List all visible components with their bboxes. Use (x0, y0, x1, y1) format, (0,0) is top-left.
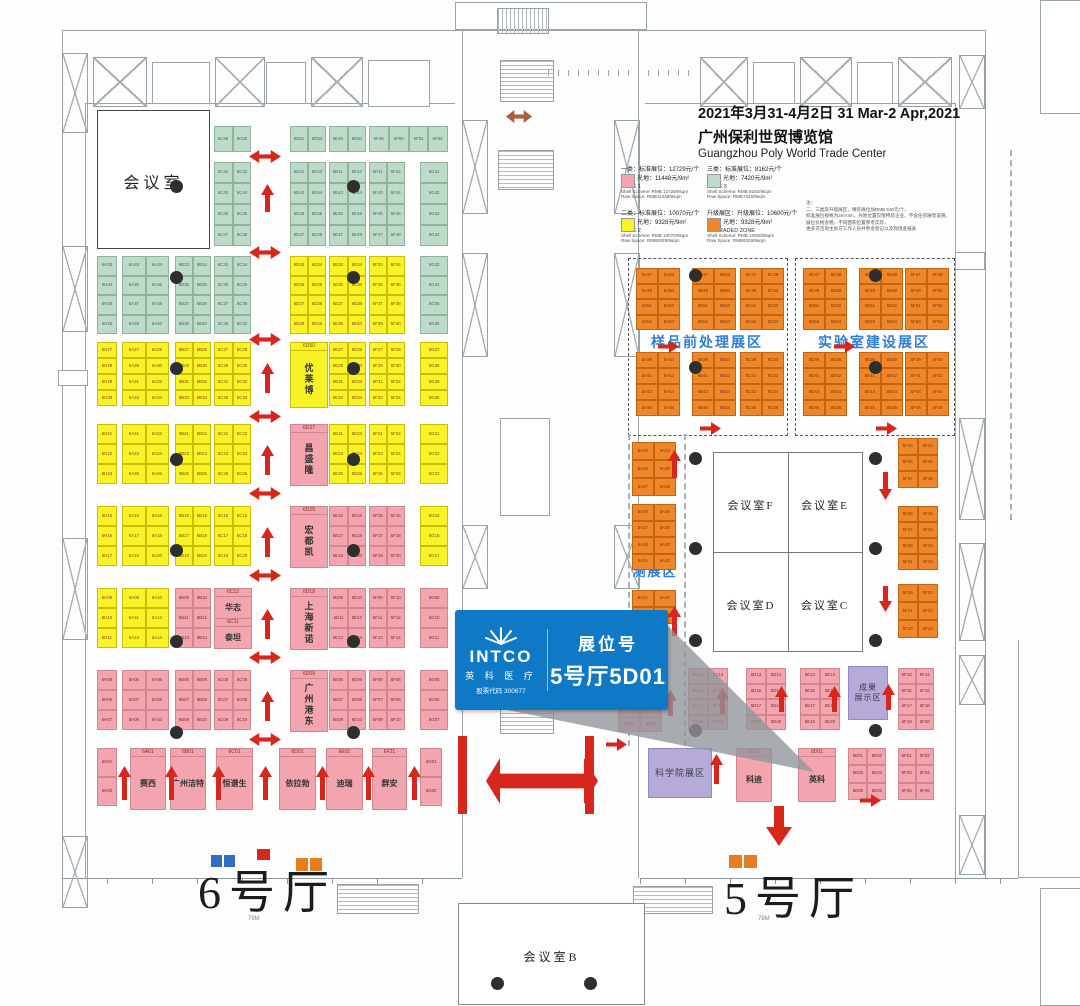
booth-group-6D51: 6D516D52 (290, 126, 326, 152)
booth-cell: 6D47 (290, 225, 308, 246)
booth-cell: 6C50 (233, 126, 252, 152)
booth-cell: 5A26 (654, 504, 676, 521)
pillar-dot (869, 269, 882, 282)
flow-arrow-right (700, 422, 721, 435)
booth-group-6A09: 6A096A106A116A126A136A14 (122, 588, 169, 648)
booth-cell: 5C42 (762, 368, 784, 384)
booth-cell: 5B48 (714, 268, 736, 284)
booth-group-5F47: 5F475F485F495F505F515F525F535F54 (905, 268, 949, 330)
booth-cell: 5A46 (658, 400, 680, 416)
booth-cell: 5C17 (688, 699, 708, 715)
booth-cell: 5C39 (740, 352, 762, 368)
booth-group-5D47: 5D475D485D495D505D515D525D535D54 (803, 268, 847, 330)
zone-sample-prep-label: 样品前处理展区 (628, 332, 786, 352)
booth-cell: 5F28 (918, 522, 938, 538)
booth-cell: 5E54 (881, 315, 903, 331)
meeting-room-b: 会议室B (458, 903, 645, 1005)
booth-cell: 6F05 (369, 670, 387, 690)
booth-cell: 6B17 (175, 526, 193, 546)
booth-cell: 6F08 (387, 690, 405, 710)
booth-cell: 5D47 (803, 268, 825, 284)
stair-block (93, 57, 147, 107)
pillar-dot (170, 453, 183, 466)
booth-cell: 6G28 (420, 358, 448, 374)
booth-cell: 5F01 (898, 748, 916, 765)
escalator-hatch (497, 8, 549, 34)
booth-cell: 6E45 (329, 204, 348, 225)
booth-cell: 5F36 (918, 455, 938, 472)
booth-group-6H27: 6H276H286H296H30 (97, 342, 117, 406)
booth-group-6G21: 6G216G226G23 (420, 424, 448, 484)
booth-cell: 6E21 (329, 424, 348, 444)
booth-group-6E49: 6E496E50 (329, 126, 366, 152)
flow-arrow-up (118, 766, 131, 800)
booth-cell: 5B49 (692, 284, 714, 300)
booth-group-6G01: 6G016G02 (420, 748, 442, 806)
booth-cell: 6G22 (420, 444, 448, 464)
booth-cell: 6F42 (387, 162, 405, 183)
booth-cell: 6B24 (193, 444, 211, 464)
booth-cell: 6A33 (122, 256, 146, 276)
booth-cell: 5A32 (654, 554, 676, 571)
booth-cell: 6C29 (214, 358, 233, 374)
booth-cell: 6H10 (97, 608, 117, 628)
wall-niche (58, 370, 88, 386)
booth-cell: 6B18 (193, 526, 211, 546)
booth-cell: 5A52 (658, 299, 680, 315)
flow-arrow-up (882, 684, 895, 710)
booth-cell: 5F25 (898, 506, 918, 522)
booth-cell: 5D41 (803, 368, 825, 384)
booth-cell: 6C33 (214, 390, 233, 406)
legend-note: 注： 二、三类及升级展区，精装展位加RMB 530元/个， 标准展位规格为3m×… (806, 200, 971, 233)
booth-cell: 6F20 (387, 546, 405, 566)
restroom-icon (211, 855, 222, 867)
booth-cell: 6F52 (428, 126, 448, 152)
booth-cell: 5D49 (803, 284, 825, 300)
flow-arrow-h2 (249, 569, 281, 582)
booth-cell: 6E28 (348, 342, 367, 358)
pillar-dot (170, 635, 183, 648)
flow-arrow-up (261, 445, 274, 475)
booth-6D25: 6D25宏都凯 (290, 506, 328, 568)
pillar-dot (347, 362, 360, 375)
booth-cell: 5F20 (916, 715, 934, 731)
flow-arrow-up (261, 527, 274, 557)
booth-cell: 6B05 (175, 670, 193, 690)
booth-cell: 5F39 (905, 352, 927, 368)
booth-cell: 6E09 (329, 588, 348, 608)
booth-cell: 6E15 (329, 506, 348, 526)
booth-cell: 6B16 (193, 506, 211, 526)
booth-cell: 5C52 (762, 299, 784, 315)
booth-cell: 6G36 (420, 315, 448, 335)
booth-cell: 6D35 (290, 276, 308, 296)
booth-cell: 6D44 (308, 183, 326, 204)
flow-arrow-h2 (249, 246, 281, 259)
booth-cell: 6E13 (329, 628, 348, 648)
booth-cell: 6A24 (146, 444, 170, 464)
booth-cell: 5F23 (898, 620, 918, 638)
booth-cell: 6D46 (308, 204, 326, 225)
booth-6C12: 6C12华志 (214, 588, 252, 619)
hall6-dimension: 79M (248, 916, 260, 922)
pillar-dot (869, 634, 882, 647)
booth-cell: 5D46 (825, 400, 847, 416)
booth-cell: 5F05 (898, 783, 916, 800)
booth-cell: 5F13 (898, 668, 916, 684)
booth-cell: 6A31 (122, 374, 146, 390)
booth-cell: 5B44 (714, 384, 736, 400)
booth-group-5F25: 5F255F265F275F285F295F305F315F32 (898, 506, 938, 570)
booth-cell: 6E07 (329, 690, 348, 710)
booth-cell: 6D40 (308, 315, 326, 335)
booth-cell: 6C38 (233, 295, 252, 315)
booth-cell: 5A49 (636, 284, 658, 300)
booth-cell: 5F48 (927, 268, 949, 284)
booth-cell: 6E29 (329, 358, 348, 374)
booth-group-6A21: 6A216A226A236A246A256A26 (122, 424, 169, 484)
intco-brand-zh: 英 科 医 疗 (465, 669, 537, 682)
booth-cell: 6E34 (348, 390, 367, 406)
flow-arrow-right (860, 794, 881, 807)
booth-cell: 6C46 (233, 204, 252, 225)
booth-group-5A47: 5A475A485A495A505A515A525A535A54 (636, 268, 680, 330)
booth-cell: 6F34 (387, 390, 405, 406)
booth-cell: 5E46 (881, 400, 903, 416)
booth-group-6B15: 6B156B166B176B186B196B20 (175, 506, 211, 566)
booth-cell: 6G33 (420, 256, 448, 276)
stair-block (800, 57, 852, 107)
booth-cell: 5F49 (905, 284, 927, 300)
flow-arrow-up (316, 766, 329, 800)
booth-cell: 5F19 (898, 584, 918, 602)
booth-group-5D39: 5D395D405D415D425D435D445D455D46 (803, 352, 847, 416)
booth-cell: 6C18 (233, 526, 252, 546)
booth-cell: 6A40 (146, 315, 170, 335)
booth-group-6G09: 6G096G106G11 (420, 588, 448, 648)
booth-group-5F39: 5F395F405F415F425F435F445F455F46 (905, 352, 949, 416)
booth-cell: 5B52 (714, 299, 736, 315)
booth-cell: 6C09 (214, 710, 233, 730)
booth-cell: 5D52 (825, 299, 847, 315)
booth-cell: 5E42 (881, 368, 903, 384)
booth-6D09: 6D09广州港东 (290, 670, 328, 732)
pillar-dot (170, 362, 183, 375)
booth-cell: 5A35 (632, 460, 654, 478)
booth-cell: 5F18 (916, 699, 934, 715)
booth-cell: 5A44 (658, 384, 680, 400)
booth-cell: 6E08 (348, 690, 367, 710)
booth-cell: 5F33 (898, 438, 918, 455)
booth-cell: 6F35 (369, 276, 387, 296)
intco-stock-code: 股票代码 300677 (476, 685, 526, 695)
booth-cell: 6E22 (348, 424, 367, 444)
booth-cell: 6G07 (420, 710, 448, 730)
booth-cell: 6E25 (329, 464, 348, 484)
booth-cell: 5A39 (636, 352, 658, 368)
booth-cell: 5D45 (803, 400, 825, 416)
booth-cell: 6F29 (369, 358, 387, 374)
meeting-room-d-label: 会议室D (714, 597, 788, 613)
booth-group-6F09: 6F096F106F116F126F136F14 (369, 588, 405, 648)
booth-cell: 5C47 (740, 268, 762, 284)
booth-cell: 5D15 (746, 684, 766, 700)
booth-cell: 6F34 (387, 256, 405, 276)
right-corridor-dashes (1010, 150, 1012, 520)
intco-brand: INTCO (470, 647, 533, 667)
booth-cell: 6G34 (420, 276, 448, 296)
booth-cell: 6G43 (420, 204, 448, 225)
booth-cell: 6F21 (369, 424, 387, 444)
booth-cell: 5A47 (636, 268, 658, 284)
booth-6C11: 6C11泰坦 (214, 618, 252, 649)
flow-arrow-up (261, 363, 274, 393)
booth-cell: 6C07 (214, 690, 233, 710)
booth-6D18: 6D18上海新诺 (290, 588, 328, 650)
booth-cell: 6E05 (329, 670, 348, 690)
booth-group-6C33: 6C336C346C356C366C376C386C396C40 (214, 256, 251, 334)
booth-cell: 6C43 (214, 183, 233, 204)
upgraded-swatch (707, 218, 721, 232)
flow-arrow-bar (458, 736, 467, 814)
booth-cell: 6G06 (420, 690, 448, 710)
booth-cell: 6F27 (369, 342, 387, 358)
flow-arrow-up (710, 754, 723, 784)
booth-cell: 6E11 (329, 608, 348, 628)
booth-cell: 6A13 (122, 628, 146, 648)
booth-cell: 6C41 (214, 162, 233, 183)
flow-arrow-h2 (249, 410, 281, 423)
booth-cell: 6C08 (233, 690, 252, 710)
booth-cell: 6G42 (420, 183, 448, 204)
flow-arrow-up (362, 766, 375, 800)
booth-cell: 6B31 (175, 374, 193, 390)
booth-cell: 5A51 (636, 299, 658, 315)
wall-niche (955, 252, 985, 270)
legend-zone2: 二类：标准展位：10070元/个 光地：9328元/9m² ZONE 2 She… (621, 208, 709, 244)
booth-cell: 6B34 (193, 390, 211, 406)
booth-cell: 5D40 (825, 352, 847, 368)
booth-cell: 6A05 (122, 670, 146, 690)
booth-cell: 5F35 (898, 455, 918, 472)
booth-cell: 6E10 (348, 588, 367, 608)
legend-zone3: 三类：标准展位：8162元/个 光地：7420元/9m² ZONE 3 Shel… (707, 164, 795, 200)
booth-cell: 6B22 (193, 424, 211, 444)
booth-group-6E41: 6E416E426E436E446E456E466E476E48 (329, 162, 366, 246)
stair-block (898, 57, 952, 107)
booth-cell: 6A08 (146, 690, 170, 710)
booth-cell: 6H28 (97, 358, 117, 374)
stair-block (959, 815, 985, 875)
booth-cell: 5D39 (803, 352, 825, 368)
booth-cell: 5E44 (881, 384, 903, 400)
booth-cell: 5D43 (803, 384, 825, 400)
pillar-dot (584, 977, 597, 990)
booth-cell: 5F21 (898, 602, 918, 620)
booth-cell: 5A25 (632, 504, 654, 521)
booth-cell: 6A27 (122, 342, 146, 358)
booth-cell: 5B53 (692, 315, 714, 331)
elevator-block (152, 62, 210, 104)
booth-cell: 6D45 (290, 204, 308, 225)
booth-cell: 5F47 (905, 268, 927, 284)
booth-cell: 6F14 (387, 628, 405, 648)
pillar-dot (347, 271, 360, 284)
booth-cell: 6G02 (420, 777, 442, 806)
booth-cell: 5E15 (800, 684, 820, 700)
booth-cell: 6C19 (214, 546, 233, 566)
booth-cell: 6G16 (420, 526, 448, 546)
escalator-hatch (500, 60, 554, 102)
booth-group-6E21: 6E216E226E236E246E256E26 (329, 424, 366, 484)
flow-arrow-up (261, 184, 274, 212)
booth-cell: 6H16 (97, 526, 117, 546)
booth-cell: 6B36 (193, 276, 211, 296)
booth-cell: 6G27 (420, 342, 448, 358)
booth-cell: 6B11 (175, 608, 193, 628)
booth-cell: 5F15 (898, 684, 916, 700)
booth-6D01: 6D01依拉勃 (279, 748, 316, 810)
booth-cell: 5F52 (927, 299, 949, 315)
booth-cell: 5A33 (632, 442, 654, 460)
booth-6D37: 6D37昌盛隆 (290, 424, 328, 486)
booth-cell: 5F04 (916, 765, 934, 782)
stair-block (462, 525, 488, 589)
booth-group-6H15: 6H156H166H17 (97, 506, 117, 566)
booth-cell: 6B07 (175, 690, 193, 710)
booth-cell: 6E27 (329, 342, 348, 358)
info-icon (257, 849, 270, 860)
booth-group-6F49: 6F496F506F516F52 (369, 126, 448, 152)
booth-cell: 6D52 (308, 126, 326, 152)
booth-group-5F19: 5F195F205F215F225F235F24 (898, 584, 938, 638)
booth-cell: 5A43 (636, 384, 658, 400)
booth-cell: 5D20 (766, 715, 786, 731)
booth-cell: 6C26 (233, 464, 252, 484)
pillar-dot (170, 180, 183, 193)
booth-cell: 5E40 (881, 352, 903, 368)
booth-cell: 6A26 (146, 464, 170, 484)
booth-cell: 6A07 (122, 690, 146, 710)
booth-cell: 6G29 (420, 374, 448, 390)
booth-cell: 5E49 (859, 284, 881, 300)
booth-cell: 5F17 (898, 699, 916, 715)
stair-block (959, 655, 985, 705)
booth-cell: 6A30 (146, 358, 170, 374)
booth-cell: 6F39 (369, 315, 387, 335)
booth-group-6F05: 6F056F066F076F086F096F10 (369, 670, 405, 730)
pillar-dot (170, 544, 183, 557)
booth-group-6B27: 6B276B286B296B306B316B326B336B34 (175, 342, 211, 406)
booth-group-6H09: 6H096H106H11 (97, 588, 117, 648)
booth-cell: 5C49 (740, 284, 762, 300)
booth-group-6F21: 6F216F226F236F246F256F26 (369, 424, 405, 484)
booth-cell: 6H29 (97, 374, 117, 390)
booth-cell: 5B11 (618, 717, 640, 732)
pillar-dot (869, 452, 882, 465)
booth-cell: 5E45 (859, 400, 881, 416)
booth-cell: 5C15 (688, 684, 708, 700)
booth-cell: 6H30 (97, 390, 117, 406)
booth-cell: 5A42 (658, 368, 680, 384)
booth-cell: 6C17 (214, 526, 233, 546)
booth-cell: 6D48 (308, 225, 326, 246)
booth-cell: 6C32 (233, 374, 252, 390)
booth-cell: 6E41 (329, 162, 348, 183)
booth-cell: 6H34 (97, 276, 117, 296)
booth-cell: 5E48 (881, 268, 903, 284)
booth-cell: 5E14 (820, 668, 840, 684)
booth-cell: 5E43 (859, 384, 881, 400)
booth-cell: 5B54 (714, 315, 736, 331)
booth-cell: 6E33 (329, 390, 348, 406)
booth-cell: 6F40 (387, 315, 405, 335)
flow-arrow-right (876, 422, 897, 435)
stair-block (311, 57, 363, 107)
booth-group-6F41: 6F416F426F436F446F456F466F476F48 (369, 162, 405, 246)
booth-group-6E05: 6E056E066E076E086E096E10 (329, 670, 366, 730)
pillar-dot (689, 452, 702, 465)
booth-cell: 6G15 (420, 506, 448, 526)
booth-cell: 6C37 (214, 295, 233, 315)
booth-cell: 6A16 (146, 506, 170, 526)
pillar-dot (347, 726, 360, 739)
booth-cell: 6B09 (175, 588, 193, 608)
booth-cell: 5A45 (636, 400, 658, 416)
booth-group-6D33: 6D336D346D356D366D376D386D396D40 (290, 256, 326, 334)
stair-block (462, 120, 488, 214)
booth-cell: 6D34 (308, 256, 326, 276)
booth-cell: 5F53 (905, 315, 927, 331)
flow-arrow-h2 (249, 487, 281, 500)
booth-cell: 6B12 (193, 608, 211, 628)
booth-cell: 6F22 (387, 424, 405, 444)
booth-cell: 5A40 (658, 352, 680, 368)
booth-cell: 5C20 (708, 715, 728, 731)
booth-cell: 6B10 (193, 588, 211, 608)
booth-cell: 5F31 (898, 554, 918, 570)
booth-cell: 6D41 (290, 162, 308, 183)
booth-cell: 6A34 (146, 390, 170, 406)
booth-group-5A25: 5A255A265A275A285A295A305A315A32 (632, 504, 676, 570)
booth-cell: 6E26 (348, 464, 367, 484)
booth-cell: 6F12 (387, 608, 405, 628)
pillar-dot (347, 544, 360, 557)
booth-cell: 5D42 (825, 368, 847, 384)
booth-cell: 6F26 (387, 464, 405, 484)
booth-cell: 5A54 (658, 315, 680, 331)
booth-group-6C49: 6C496C50 (214, 126, 251, 152)
flow-arrow-up (408, 766, 421, 800)
hall5-dimension: 79M (758, 916, 770, 922)
booth-group-6D41: 6D416D426D436D446D456D466D476D48 (290, 162, 326, 246)
booth-cell: 5C51 (740, 299, 762, 315)
booth-cell: 6F10 (387, 588, 405, 608)
flow-arrow-h2 (249, 150, 281, 163)
escalator-hatch (500, 708, 554, 734)
booth-cell: 6B39 (175, 315, 193, 335)
booth-cell: 5D44 (825, 384, 847, 400)
booth-cell: 6B14 (193, 628, 211, 648)
booth-cell: 5C46 (762, 400, 784, 416)
booth-cell: 5E01 (848, 748, 867, 765)
booth-group-6G33: 6G336G346G356G36 (420, 256, 448, 334)
booth-cell: 6F31 (369, 374, 387, 390)
booth-cell: 5F37 (898, 471, 918, 488)
booth-cell: 6B27 (175, 342, 193, 358)
booth-group-5F01: 5F015F025F035F045F055F06 (898, 748, 934, 800)
